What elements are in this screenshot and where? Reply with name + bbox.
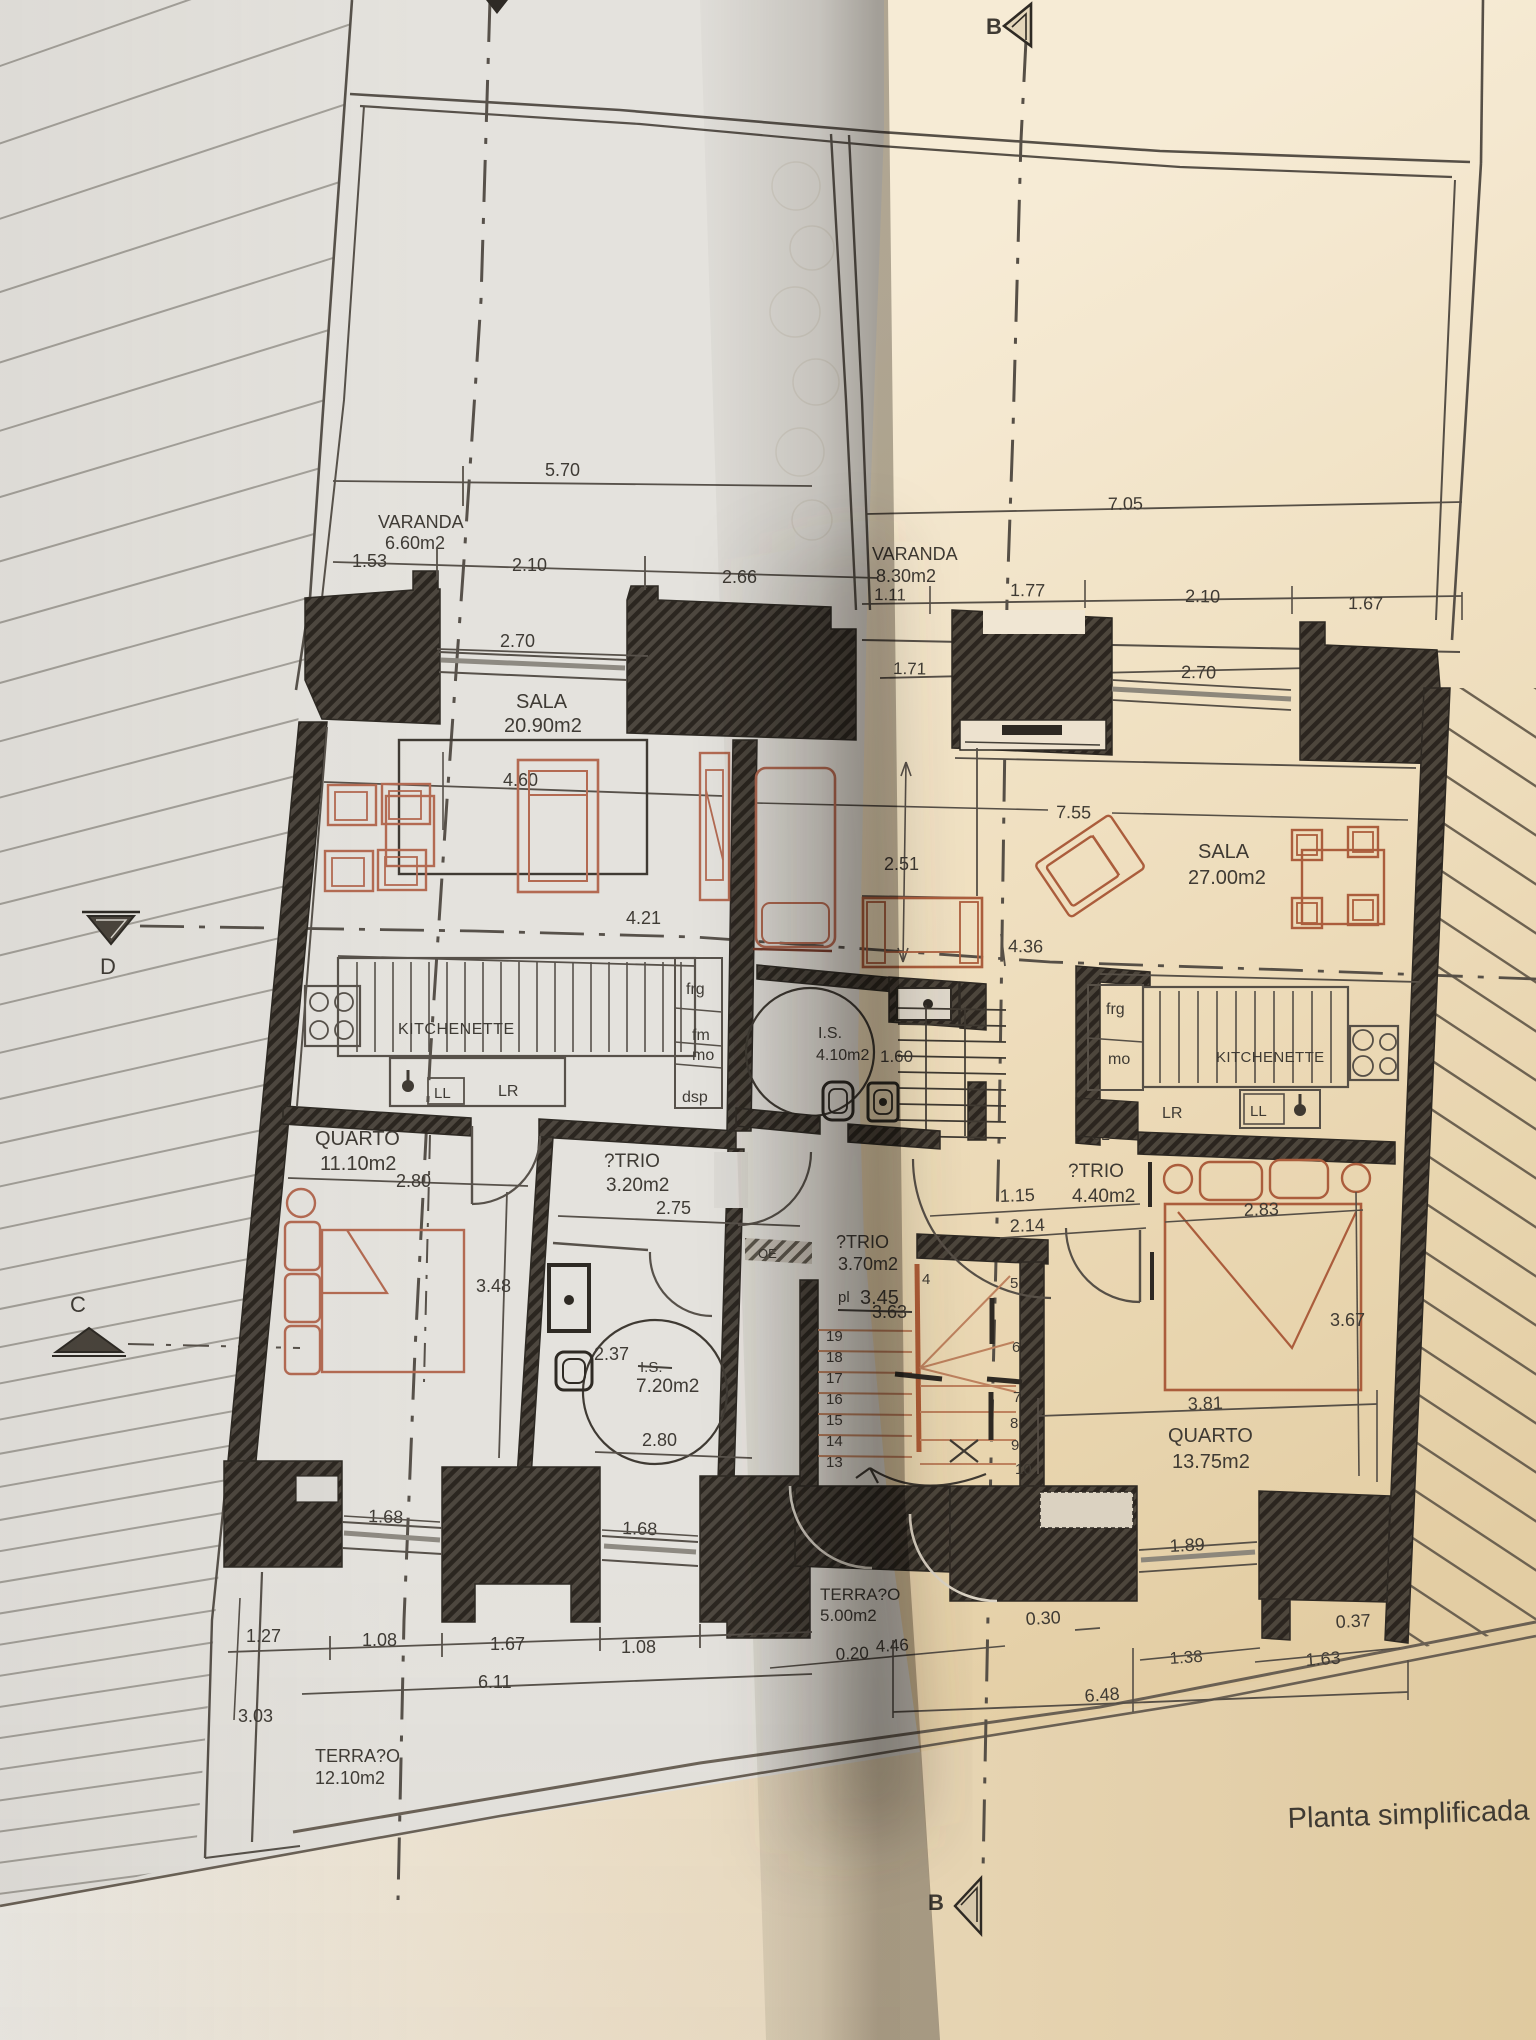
svg-text:2.75: 2.75 bbox=[656, 1198, 691, 1218]
svg-text:fm: fm bbox=[692, 1027, 710, 1044]
svg-text:20.90m2: 20.90m2 bbox=[504, 715, 582, 737]
svg-text:2.37: 2.37 bbox=[594, 1344, 629, 1364]
svg-text:3.48: 3.48 bbox=[476, 1276, 511, 1296]
svg-text:5.70: 5.70 bbox=[545, 460, 580, 480]
svg-text:1.68: 1.68 bbox=[622, 1518, 658, 1539]
svg-text:4.60: 4.60 bbox=[503, 770, 538, 790]
svg-text:4.21: 4.21 bbox=[626, 908, 661, 928]
svg-text:dsp: dsp bbox=[682, 1089, 708, 1106]
svg-text:mo: mo bbox=[692, 1047, 714, 1064]
svg-text:3.20m2: 3.20m2 bbox=[606, 1175, 669, 1196]
svg-text:2.10: 2.10 bbox=[512, 555, 547, 575]
svg-text:LL: LL bbox=[434, 1085, 451, 1102]
svg-text:frg: frg bbox=[686, 981, 705, 998]
svg-text:2.80: 2.80 bbox=[642, 1430, 677, 1450]
svg-text:2.70: 2.70 bbox=[500, 631, 535, 651]
svg-text:?TRIO: ?TRIO bbox=[604, 1151, 660, 1172]
svg-text:LR: LR bbox=[498, 1083, 518, 1100]
svg-text:7.20m2: 7.20m2 bbox=[636, 1376, 699, 1397]
svg-text:SALA: SALA bbox=[516, 691, 568, 713]
